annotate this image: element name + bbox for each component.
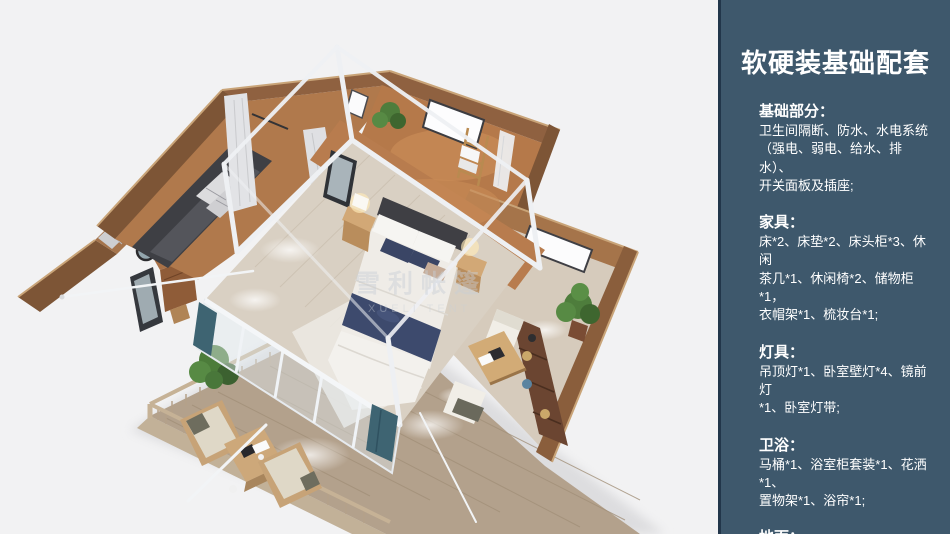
section-heading: 家具： (759, 213, 934, 233)
panel-content: 基础部分： 卫生间隔断、防水、水电系统 （强电、弱电、给水、排水）、 开关面板及… (759, 102, 934, 534)
panel-title: 软硬装基础配套 (721, 49, 950, 77)
section-furniture: 家具： 床*2、床垫*2、床头柜*3、休闲 茶几*1、休闲椅*2、储物柜*1， … (759, 213, 934, 324)
section-body: 卫生间隔断、防水、水电系统 （强电、弱电、给水、排水）、 开关面板及插座; (759, 122, 934, 195)
section-heading: 地面： (759, 528, 934, 534)
slide: 雪利帐篷 XUELI TENT 软硬装基础配套 基础部分： 卫生间隔断、防水、水… (0, 0, 950, 534)
section-body: 床*2、床垫*2、床头柜*3、休闲 茶几*1、休闲椅*2、储物柜*1， 衣帽架*… (759, 233, 934, 324)
section-basics: 基础部分： 卫生间隔断、防水、水电系统 （强电、弱电、给水、排水）、 开关面板及… (759, 102, 934, 195)
info-panel: 软硬装基础配套 基础部分： 卫生间隔断、防水、水电系统 （强电、弱电、给水、排水… (718, 0, 950, 534)
section-lighting: 灯具： 吊顶灯*1、卧室壁灯*4、镜前灯 *1、卧室灯带; (759, 343, 934, 418)
section-heading: 基础部分： (759, 102, 934, 122)
floorplan-3d-illustration: 雪利帐篷 XUELI TENT (0, 0, 718, 534)
watermark: 雪利帐篷 XUELI TENT (355, 269, 487, 315)
deck-kettle (229, 485, 237, 493)
section-heading: 卫浴： (759, 436, 934, 456)
section-bathroom: 卫浴： 马桶*1、浴室柜套装*1、花洒*1、 置物架*1、浴帘*1; (759, 436, 934, 511)
section-heading: 灯具： (759, 343, 934, 363)
section-flooring: 地面： 强化木地板、卫生间防滑防潮石 塑板; (759, 528, 934, 534)
floorplan-render: 雪利帐篷 XUELI TENT (0, 0, 718, 534)
section-body: 吊顶灯*1、卧室壁灯*4、镜前灯 *1、卧室灯带; (759, 363, 934, 418)
leaning-mirror (130, 267, 163, 332)
svg-text:雪利帐篷: 雪利帐篷 (355, 269, 487, 298)
section-body: 马桶*1、浴室柜套装*1、花洒*1、 置物架*1、浴帘*1; (759, 456, 934, 511)
svg-text:XUELI TENT: XUELI TENT (368, 303, 471, 315)
